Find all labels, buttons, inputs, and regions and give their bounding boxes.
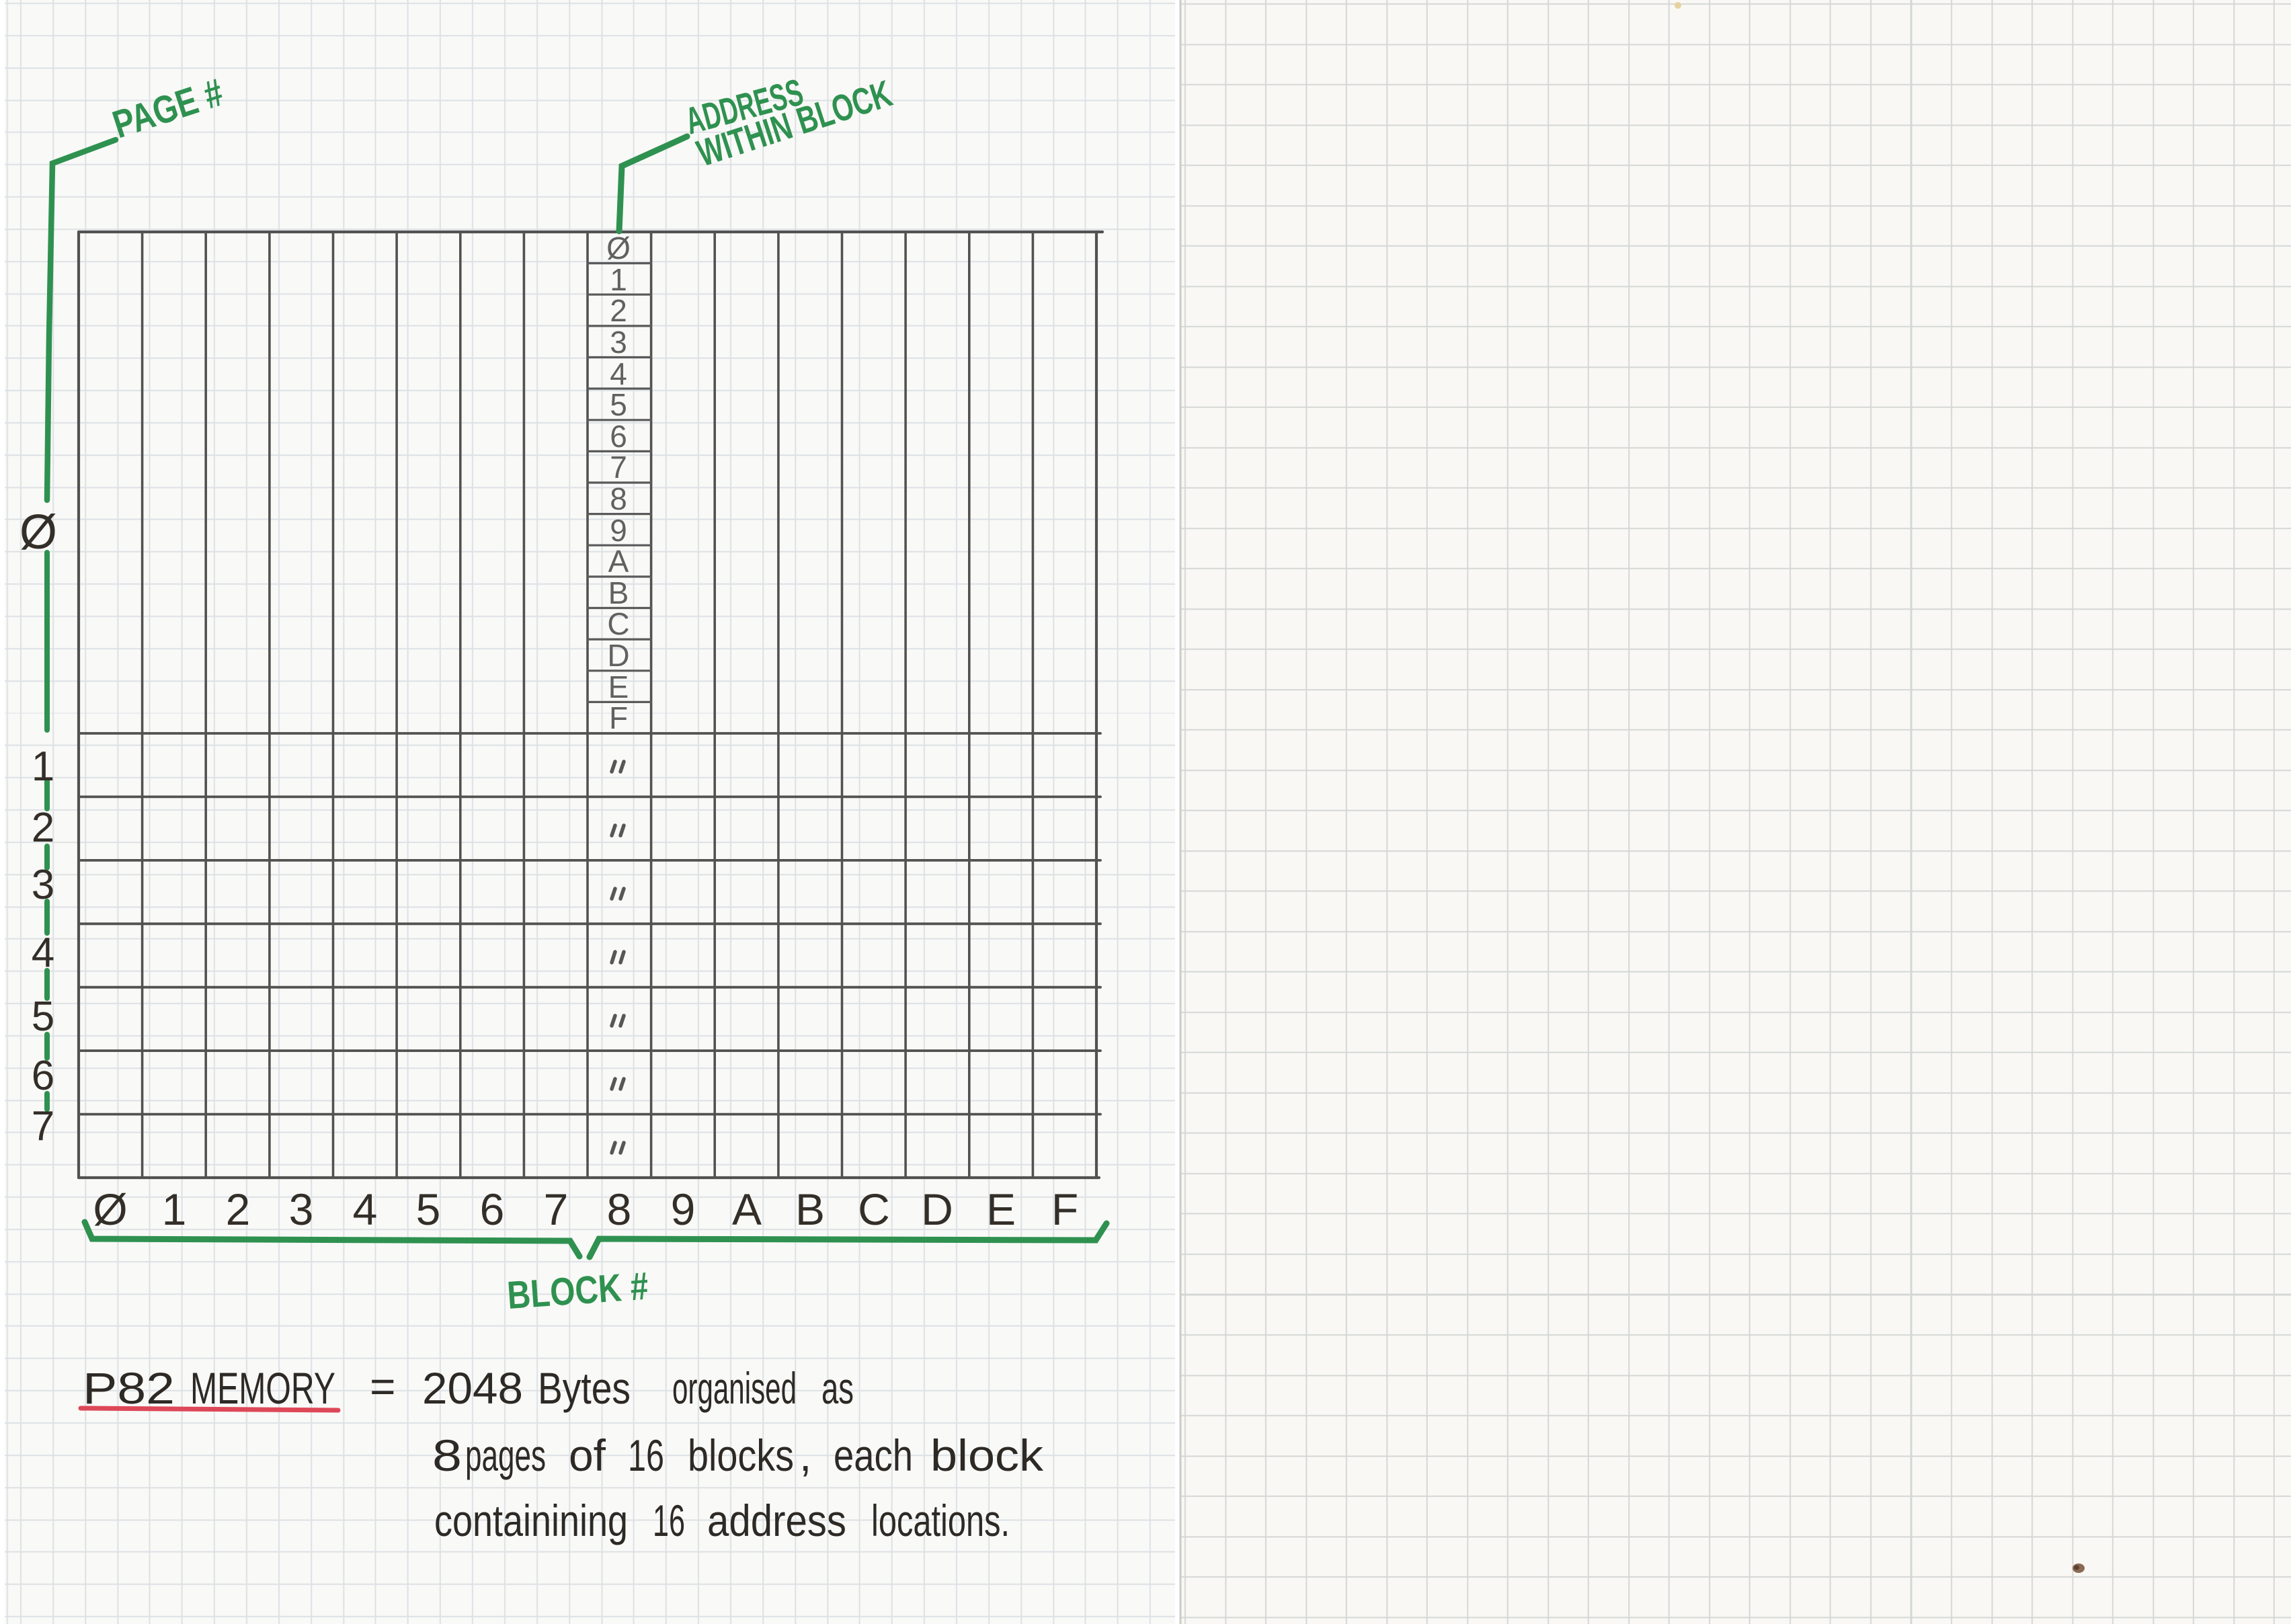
svg-text:,: , — [799, 1430, 811, 1480]
svg-text:3: 3 — [289, 1184, 314, 1234]
svg-text:Ø: Ø — [93, 1184, 127, 1234]
svg-text:each: each — [834, 1430, 913, 1480]
svg-text:1: 1 — [32, 743, 54, 790]
svg-text:1: 1 — [610, 262, 627, 297]
svg-text:8: 8 — [432, 1430, 462, 1480]
svg-text:5: 5 — [32, 993, 54, 1040]
svg-text:5: 5 — [416, 1184, 441, 1234]
svg-text:4: 4 — [32, 930, 54, 976]
svg-text:pages: pages — [465, 1430, 546, 1480]
svg-text:2: 2 — [226, 1184, 251, 1234]
svg-text:locations.: locations. — [871, 1496, 1010, 1545]
svg-text:1: 1 — [162, 1184, 187, 1234]
svg-text:7: 7 — [32, 1103, 54, 1149]
svg-text:9: 9 — [610, 513, 627, 548]
svg-text:4: 4 — [610, 356, 627, 391]
svg-text:address: address — [707, 1496, 846, 1545]
svg-text:16: 16 — [653, 1496, 685, 1545]
svg-text:as: as — [821, 1363, 854, 1413]
svg-text:B: B — [795, 1184, 825, 1234]
svg-text:BLOCK #: BLOCK # — [506, 1264, 649, 1317]
svg-text:5: 5 — [610, 387, 627, 422]
svg-text:C: C — [858, 1184, 890, 1234]
svg-text:Ø: Ø — [19, 505, 57, 559]
svg-text:6: 6 — [32, 1053, 54, 1099]
svg-text:block: block — [930, 1430, 1044, 1480]
svg-text:P82: P82 — [83, 1363, 175, 1413]
svg-text:7: 7 — [544, 1184, 569, 1234]
svg-text:C: C — [607, 606, 629, 641]
svg-text:3: 3 — [610, 325, 627, 360]
svg-text:2048: 2048 — [422, 1363, 523, 1413]
svg-text:F: F — [1051, 1184, 1078, 1234]
svg-text:E: E — [986, 1184, 1016, 1234]
svg-text:E: E — [608, 669, 629, 704]
svg-text:2: 2 — [610, 293, 627, 328]
svg-text:D: D — [607, 638, 629, 673]
svg-text:A: A — [732, 1184, 762, 1234]
svg-text:6: 6 — [480, 1184, 505, 1234]
svg-text:Ø: Ø — [606, 231, 631, 266]
svg-text:Bytes: Bytes — [538, 1363, 631, 1413]
svg-text:A: A — [608, 544, 629, 579]
svg-text:8: 8 — [610, 481, 627, 516]
svg-text:MEMORY: MEMORY — [190, 1363, 335, 1413]
svg-text:organised: organised — [672, 1363, 797, 1413]
svg-text:=: = — [370, 1361, 396, 1411]
svg-text:16: 16 — [628, 1430, 664, 1480]
svg-text:PAGE #: PAGE # — [108, 71, 229, 147]
svg-text:7: 7 — [610, 450, 627, 485]
svg-text:of: of — [569, 1430, 606, 1480]
svg-text:containining: containining — [434, 1496, 628, 1545]
svg-text:4: 4 — [353, 1184, 378, 1234]
svg-text:3: 3 — [32, 862, 54, 908]
svg-text:B: B — [608, 575, 629, 610]
svg-text:blocks: blocks — [688, 1430, 794, 1480]
svg-text:9: 9 — [671, 1184, 696, 1234]
svg-text:2: 2 — [32, 805, 54, 851]
svg-text:F: F — [609, 700, 628, 735]
svg-text:D: D — [921, 1184, 953, 1234]
svg-text:6: 6 — [610, 419, 627, 454]
svg-text:8: 8 — [607, 1184, 632, 1234]
